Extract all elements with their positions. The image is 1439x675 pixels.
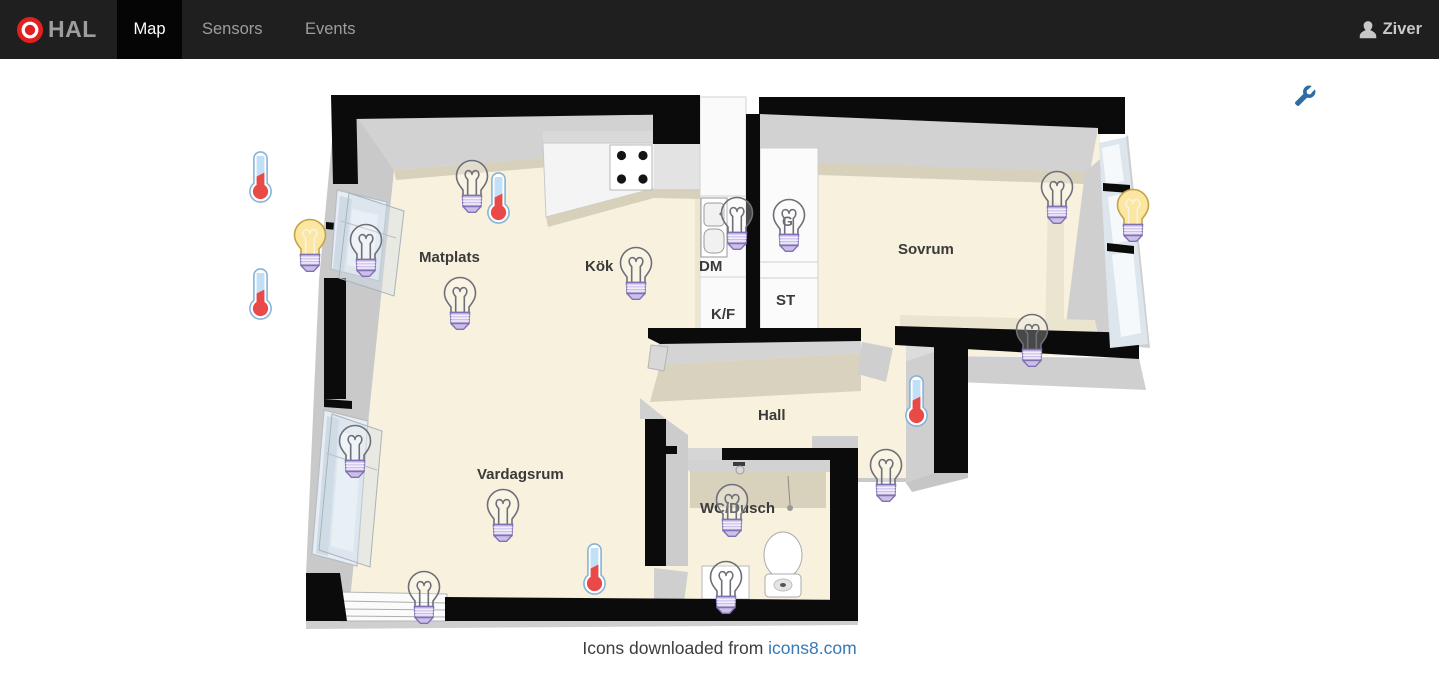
svg-text:K/F: K/F [711, 306, 735, 323]
svg-text:Vardagsrum: Vardagsrum [477, 466, 564, 483]
svg-text:ST: ST [776, 292, 795, 309]
svg-text:Sovrum: Sovrum [898, 241, 954, 258]
svg-text:DM: DM [699, 258, 722, 275]
svg-text:Kök: Kök [585, 258, 614, 275]
svg-text:Matplats: Matplats [419, 249, 480, 266]
svg-text:Hall: Hall [758, 407, 786, 424]
